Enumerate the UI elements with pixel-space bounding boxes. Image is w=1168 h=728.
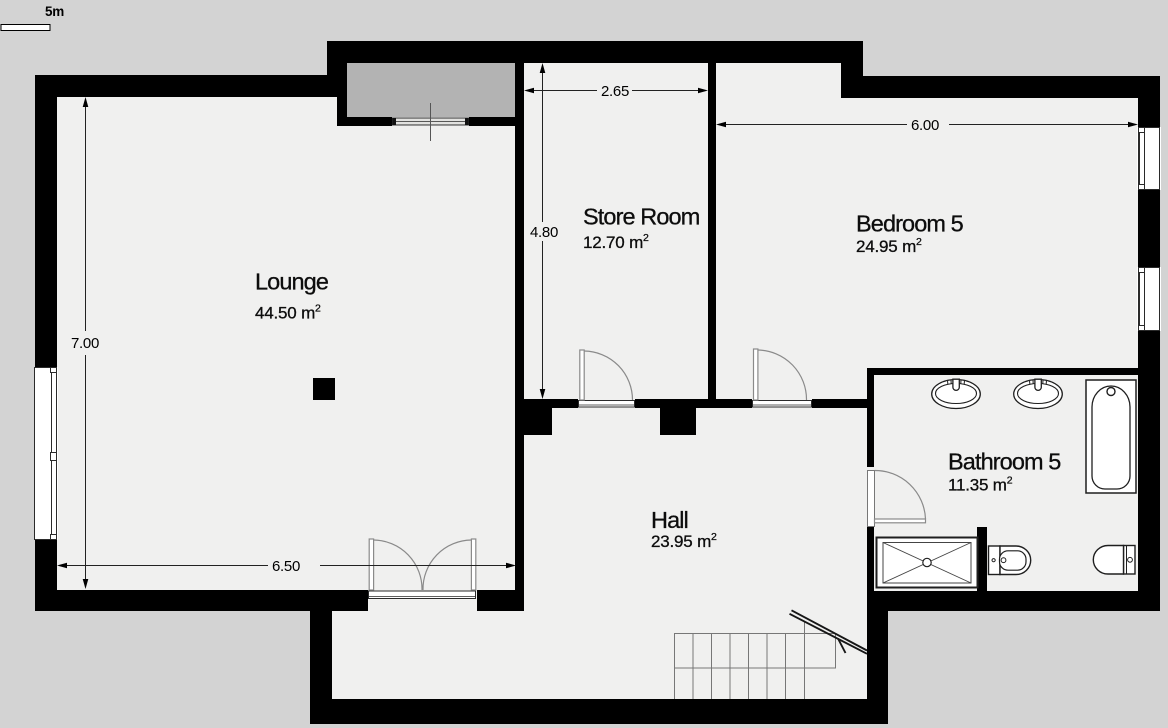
svg-text:Hall: Hall [651,507,688,533]
svg-text:44.50 m2: 44.50 m2 [255,303,321,323]
svg-text:Lounge: Lounge [255,269,329,295]
svg-text:23.95 m2: 23.95 m2 [651,531,717,551]
svg-text:7.00: 7.00 [71,335,99,352]
svg-text:24.95 m2: 24.95 m2 [856,236,922,256]
svg-text:12.70 m2: 12.70 m2 [583,232,649,252]
svg-text:5m: 5m [45,4,64,19]
svg-text:Store Room: Store Room [583,204,700,230]
svg-text:6.00: 6.00 [911,117,939,134]
svg-text:4.80: 4.80 [530,224,558,241]
svg-text:Bedroom 5: Bedroom 5 [856,211,964,237]
svg-text:6.50: 6.50 [272,558,300,575]
svg-text:2.65: 2.65 [601,83,629,100]
svg-text:Bathroom 5: Bathroom 5 [948,449,1061,475]
svg-text:11.35 m2: 11.35 m2 [948,475,1013,495]
